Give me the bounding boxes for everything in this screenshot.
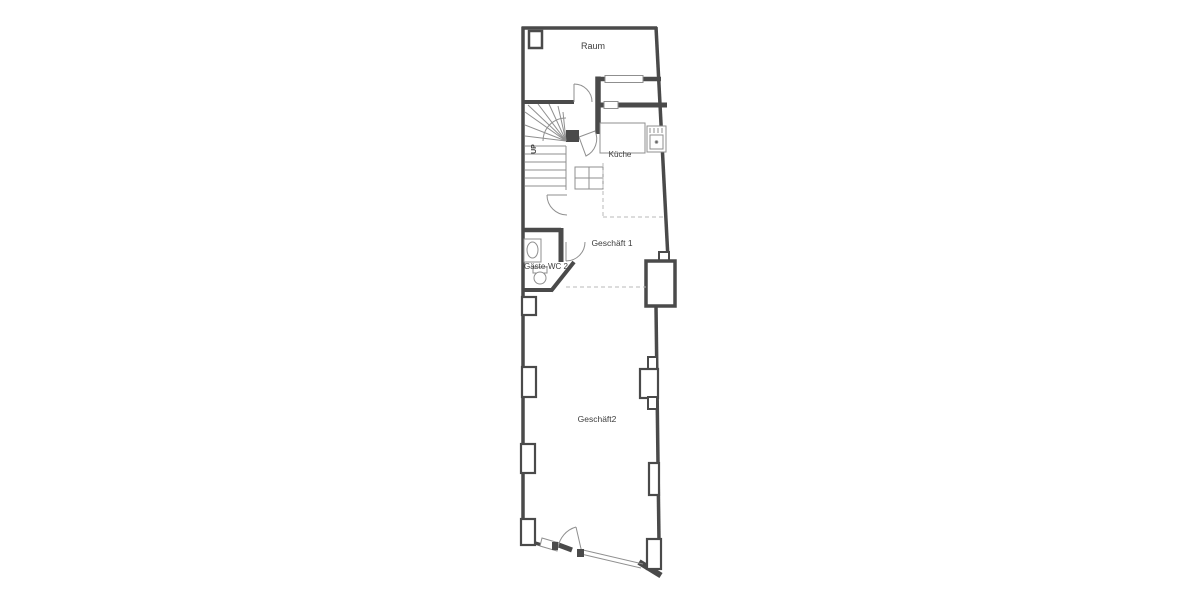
kitchen-sink-drain [655,141,658,144]
floor-plan-svg: Raum Küche Geschäft 1 Gäste-WC 2 Geschäf… [0,0,1200,600]
kitchen-counter [600,123,645,153]
niche-top-left [529,31,542,48]
label-geschaeft1: Geschäft 1 [591,238,632,248]
wc-toilet-bowl [534,272,546,284]
label-kueche: Küche [609,150,632,159]
door-wc-arc [566,242,585,261]
window-left-4 [521,519,535,545]
stair-door-jamb [566,130,579,142]
mullions [552,130,584,557]
window-left-2 [522,367,536,397]
window-right-1-tab-bottom [648,397,657,409]
label-raum: Raum [581,41,605,51]
mullion-2 [552,542,558,550]
window-right-3 [647,539,661,569]
door-hall-arc [547,195,567,215]
door-raum-arc [574,84,592,102]
room-labels: Raum Küche Geschäft 1 Gäste-WC 2 Geschäf… [524,41,633,424]
window-left-3 [521,444,535,473]
opening-kitchen-pass [604,102,618,109]
door-stair-wedge [579,131,597,156]
label-gaeste-wc: Gäste-WC 2 [524,262,569,271]
stair-ray [528,105,566,141]
opening-raum-kueche [605,76,643,83]
window-left-1 [522,297,536,315]
label-stairs-up: UP [531,144,538,154]
wall-right-lower [656,306,659,542]
pillar-right [646,261,675,306]
window-right-1 [640,369,658,398]
floor-plan-page: Raum Küche Geschäft 1 Gäste-WC 2 Geschäf… [0,0,1200,600]
label-geschaeft2: Geschäft2 [578,414,617,424]
window-right-2 [649,463,659,495]
mullion-1 [577,549,584,557]
wc-sink-basin [527,242,538,258]
